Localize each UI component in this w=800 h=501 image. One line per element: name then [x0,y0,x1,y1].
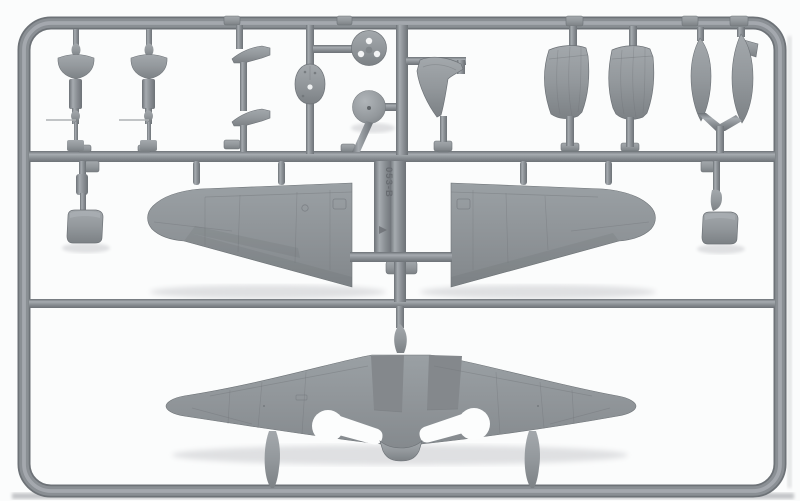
sprue-photo: 053-B [0,0,800,501]
central-spine-runner [396,25,408,155]
sprue-marking-text: 053-B [383,167,394,198]
sprue-photo-canvas: 053-B [0,0,800,501]
